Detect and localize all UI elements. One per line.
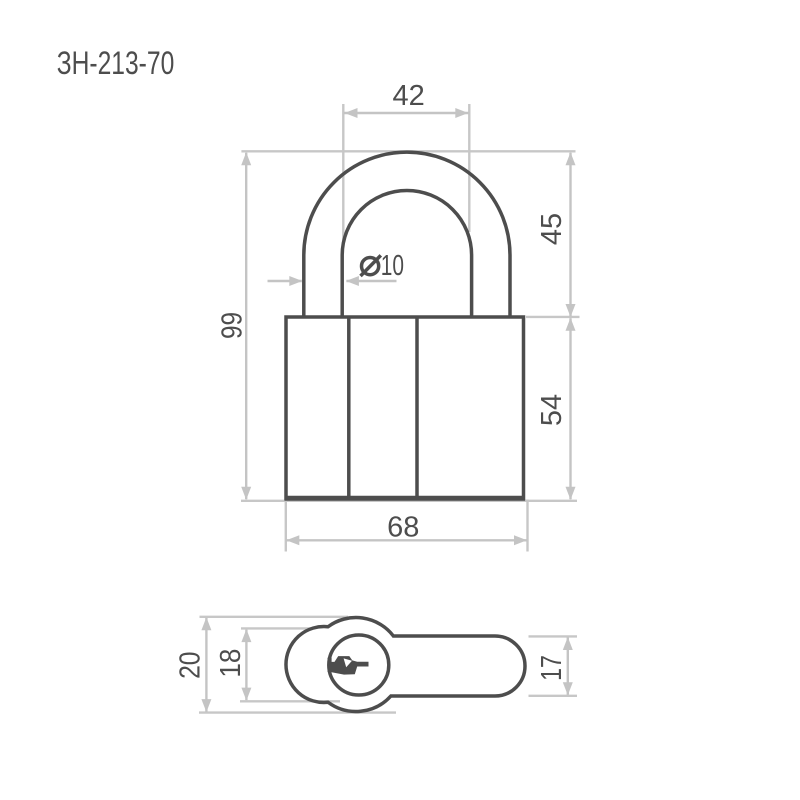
svg-text:45: 45 bbox=[536, 213, 568, 245]
svg-text:20: 20 bbox=[174, 651, 206, 678]
svg-text:68: 68 bbox=[387, 512, 419, 544]
svg-text:17: 17 bbox=[534, 655, 567, 681]
svg-text:18: 18 bbox=[214, 649, 247, 678]
svg-text:10: 10 bbox=[381, 250, 404, 282]
svg-text:ЗН-213-70: ЗН-213-70 bbox=[57, 46, 175, 82]
svg-text:42: 42 bbox=[392, 80, 424, 112]
svg-text:99: 99 bbox=[216, 312, 248, 339]
svg-text:54: 54 bbox=[536, 394, 568, 426]
